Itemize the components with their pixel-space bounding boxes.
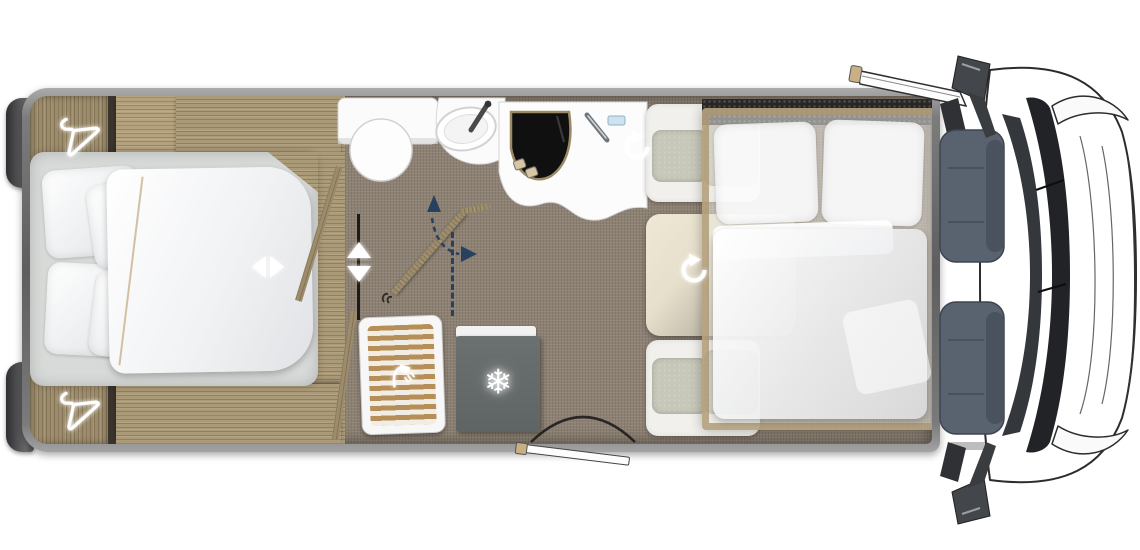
cabinet-seam	[108, 382, 116, 444]
overhead-cabinet	[116, 96, 176, 154]
open-cab-door	[849, 65, 966, 106]
door-hinge	[380, 288, 398, 306]
base-cabinet	[116, 384, 341, 444]
snowflake-icon: ❄	[484, 362, 513, 402]
vehicle-body: ❄	[22, 88, 940, 452]
door-end-cap	[515, 442, 528, 455]
sliding-door-arrows-icon	[346, 240, 372, 296]
pillow	[713, 121, 818, 224]
overhead-cabinet	[176, 96, 341, 152]
entry-door-swing-arc	[525, 392, 640, 444]
bed-extend-arrows-icon	[252, 254, 286, 280]
floorplan-canvas: ❄	[0, 0, 1140, 550]
shower-head-icon	[386, 358, 419, 391]
seat-cushion	[652, 130, 708, 182]
sink-accessory	[608, 116, 625, 125]
seat-cushion	[652, 358, 708, 414]
door-swing-arrows-icon	[405, 192, 495, 276]
shower-tray	[358, 315, 446, 436]
cabinet-seam	[108, 96, 116, 156]
table-swivel-rotate-icon	[676, 252, 712, 288]
cab-front	[840, 40, 1140, 540]
kitchen-unit	[495, 100, 650, 235]
interior-floor: ❄	[30, 96, 932, 444]
seat-swivel-rotate-icon	[619, 129, 655, 165]
door-dashed-line	[451, 232, 454, 316]
a-pillar	[940, 442, 966, 482]
